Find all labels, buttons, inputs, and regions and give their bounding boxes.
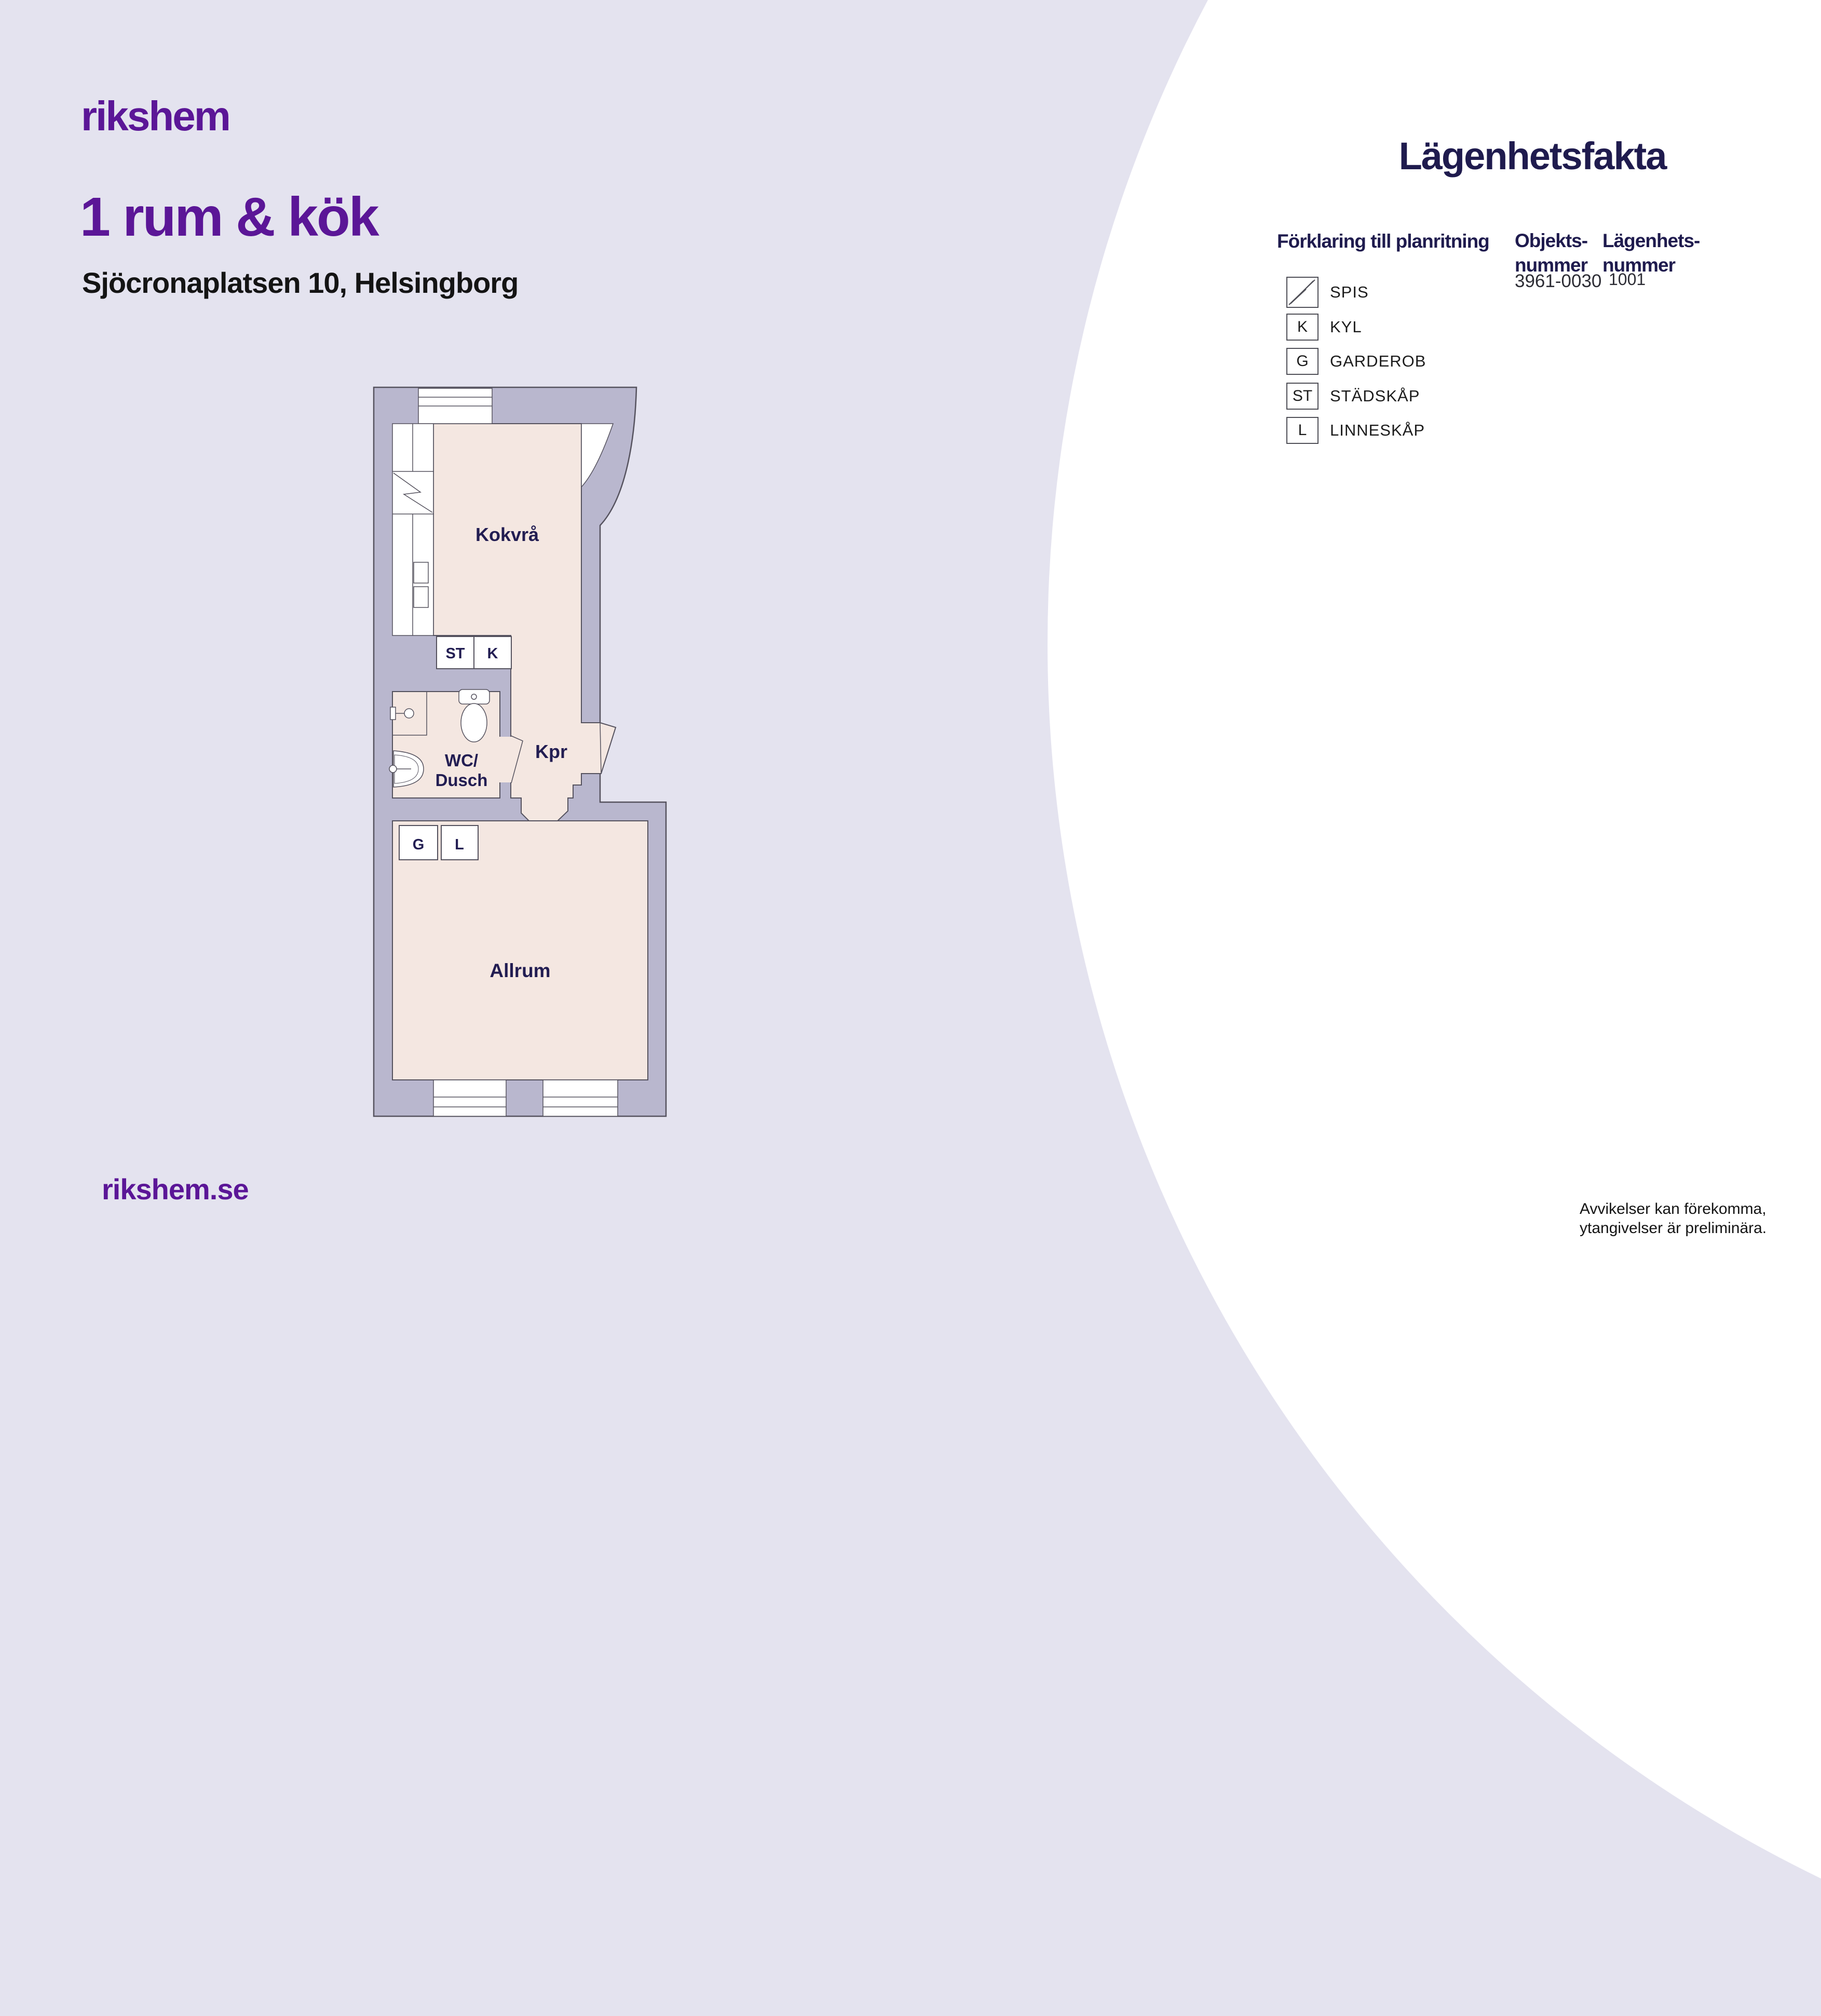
kitchen-sink-basin-1 [414,562,428,583]
label-bath-line2: Dusch [436,770,488,790]
label-bath-line1: WC/ [445,751,478,770]
label-cabinet-k: K [487,645,498,662]
disclaimer-line1: Avvikelser kan förekomma, [1580,1199,1766,1219]
brand-logo: rikshem [81,92,229,140]
legend-label-linneskap: LINNESKÅP [1330,417,1425,444]
label-cabinet-g: G [413,836,425,853]
label-hall: Kpr [535,741,567,762]
legend-box-garderob: G [1286,348,1319,375]
legend-label-kyl: KYL [1330,314,1362,341]
window-bottom-right [543,1080,618,1116]
legend-label-stadskap: STÄDSKÅP [1330,383,1420,410]
footer-website-link[interactable]: rikshem.se [102,1172,249,1206]
label-cabinet-l: L [455,836,464,853]
legend-label-garderob: GARDEROB [1330,348,1426,375]
page-address: Sjöcronaplatsen 10, Helsingborg [82,266,518,300]
apartment-number-value: 1001 [1609,270,1646,289]
kitchen-counter [392,424,433,635]
spis-icon [1287,278,1317,307]
background-circle [1048,0,1821,2016]
bath-door-opening [499,737,512,782]
page-title: 1 rum & kök [80,186,378,249]
floor-plan: Kokvrå ST K WC/ Dusch Kpr G L Allrum [363,379,675,1127]
facts-title: Lägenhetsfakta [1397,134,1667,178]
legend-title: Förklaring till planritning [1277,231,1489,252]
legend-label-spis: SPIS [1330,279,1369,306]
shower-tap-icon [390,707,396,720]
object-number-label-line1: Objekts- [1515,228,1587,253]
label-kitchen: Kokvrå [475,524,539,545]
window-bottom-left [433,1080,506,1116]
legend-box-spis [1286,277,1319,308]
legend-box-kyl: K [1286,314,1319,341]
window-top [418,388,492,424]
apartment-number-label-line1: Lägenhets- [1602,228,1700,253]
label-cabinet-st: ST [445,645,465,662]
object-number-value: 3961-0030 [1515,271,1601,292]
object-number-label: Objekts- nummer [1515,228,1587,277]
legend-box-stadskap: ST [1286,383,1319,410]
kitchen-sink-basin-2 [414,587,428,607]
disclaimer: Avvikelser kan förekomma, ytangivelser ä… [1580,1199,1766,1238]
legend-box-linneskap: L [1286,417,1319,444]
disclaimer-line2: ytangivelser är preliminära. [1580,1219,1766,1238]
label-living: Allrum [490,960,550,981]
